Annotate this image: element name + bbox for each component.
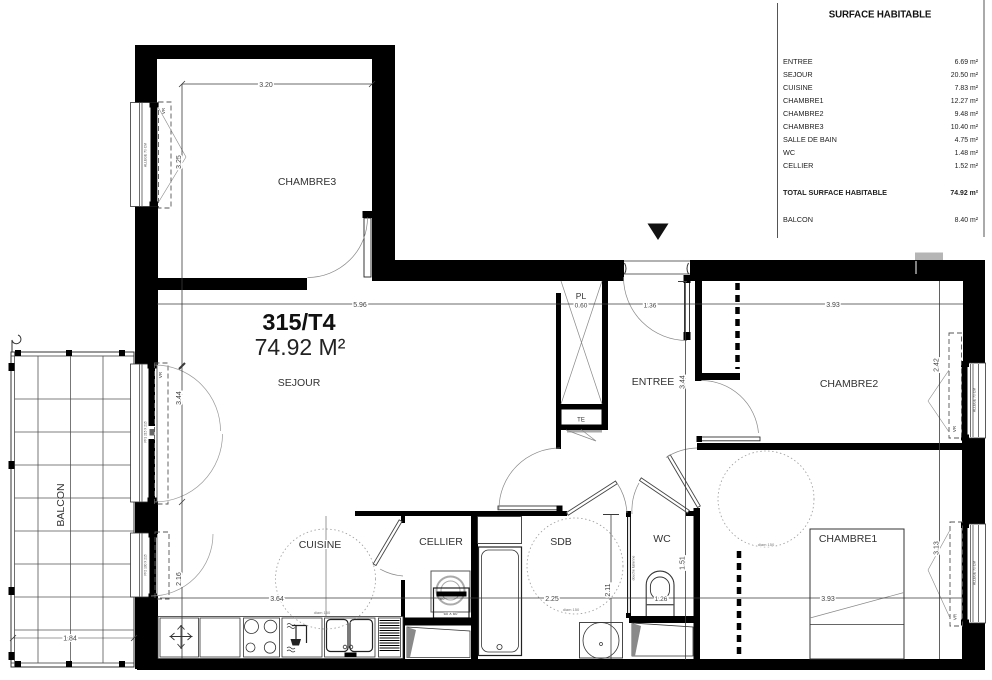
svg-text:PF2 100 X 215: PF2 100 X 215 [143,554,147,575]
svg-text:60: 60 [440,596,445,601]
svg-text:SALLE DE BAIN: SALLE DE BAIN [783,135,837,144]
svg-text:12.27 m²: 12.27 m² [951,98,979,105]
svg-text:1.26: 1.26 [655,596,668,603]
svg-text:CHAMBRE1: CHAMBRE1 [783,96,824,105]
svg-text:1.48 m²: 1.48 m² [955,150,979,157]
svg-text:BALCON: BALCON [55,483,67,526]
svg-text:CUISINE: CUISINE [299,539,342,551]
svg-text:1.36: 1.36 [644,303,657,310]
svg-text:3.93: 3.93 [826,302,840,309]
svg-text:1.52 m²: 1.52 m² [955,163,979,170]
svg-text:20.50 m²: 20.50 m² [951,72,979,79]
svg-text:VR: VR [952,425,957,432]
svg-text:WC: WC [783,148,795,157]
svg-text:PF1 215 X 215: PF1 215 X 215 [143,421,147,442]
svg-text:10.40 m²: 10.40 m² [951,124,979,131]
svg-text:8.40 m²: 8.40 m² [955,217,979,224]
svg-text:4.75 m²: 4.75 m² [955,137,979,144]
svg-text:diam 150: diam 150 [758,542,775,547]
svg-text:5.96: 5.96 [353,302,367,309]
svg-text:ALLEGE 70 CM: ALLEGE 70 CM [973,561,977,585]
svg-text:SEJOUR: SEJOUR [278,377,321,389]
svg-text:diam 150: diam 150 [314,610,331,615]
svg-text:0.60: 0.60 [575,303,588,310]
svg-text:CHAMBRE2: CHAMBRE2 [783,109,824,118]
svg-text:CELLIER: CELLIER [783,161,813,170]
svg-text:60 X 60: 60 X 60 [444,611,459,616]
svg-text:BALCON: BALCON [783,215,813,224]
svg-text:74.92 m²: 74.92 m² [950,190,978,197]
svg-text:3.25: 3.25 [176,155,183,169]
svg-text:ALLEGE 70 CM: ALLEGE 70 CM [144,143,148,167]
svg-text:TE: TE [577,418,585,424]
svg-text:PL: PL [576,291,587,301]
svg-text:SURFACE HABITABLE: SURFACE HABITABLE [829,10,932,21]
svg-text:3.20: 3.20 [259,82,273,89]
svg-text:3.93: 3.93 [821,596,835,603]
svg-text:SDB: SDB [550,536,572,548]
svg-text:douche italienne: douche italienne [632,556,636,581]
svg-text:315/T4: 315/T4 [262,309,335,335]
svg-text:2.16: 2.16 [176,572,183,586]
svg-text:2.11: 2.11 [605,583,612,596]
svg-text:VR: VR [158,371,163,378]
svg-text:6.69 m²: 6.69 m² [955,59,979,66]
svg-text:ALLEGE 70 CM: ALLEGE 70 CM [973,388,977,412]
svg-text:VR: VR [953,613,958,620]
svg-text:WC: WC [653,533,671,545]
svg-text:diam 150: diam 150 [563,607,580,612]
svg-text:TOTAL SURFACE HABITABLE: TOTAL SURFACE HABITABLE [783,188,887,197]
svg-text:7.83 m²: 7.83 m² [955,85,979,92]
svg-text:ENTREE: ENTREE [783,57,813,66]
svg-text:3.13: 3.13 [934,541,941,555]
svg-text:CHAMBRE3: CHAMBRE3 [278,176,337,188]
svg-text:CHAMBRE2: CHAMBRE2 [820,378,879,390]
svg-text:1.51: 1.51 [680,556,687,570]
svg-text:74.92 M²: 74.92 M² [255,334,346,360]
svg-text:3.44: 3.44 [176,391,183,405]
svg-text:CHAMBRE1: CHAMBRE1 [819,533,878,545]
svg-text:9.48 m²: 9.48 m² [955,111,979,118]
svg-text:2.25: 2.25 [545,596,559,603]
svg-text:ENTREE: ENTREE [632,376,675,388]
svg-text:1.84: 1.84 [63,636,77,643]
svg-text:CELLIER: CELLIER [419,536,463,548]
svg-text:CHAMBRE3: CHAMBRE3 [783,122,824,131]
svg-text:3.44: 3.44 [680,375,687,389]
svg-text:3.64: 3.64 [270,596,284,603]
svg-text:CUISINE: CUISINE [783,83,813,92]
svg-text:2.42: 2.42 [934,358,941,372]
svg-text:SEJOUR: SEJOUR [783,70,813,79]
